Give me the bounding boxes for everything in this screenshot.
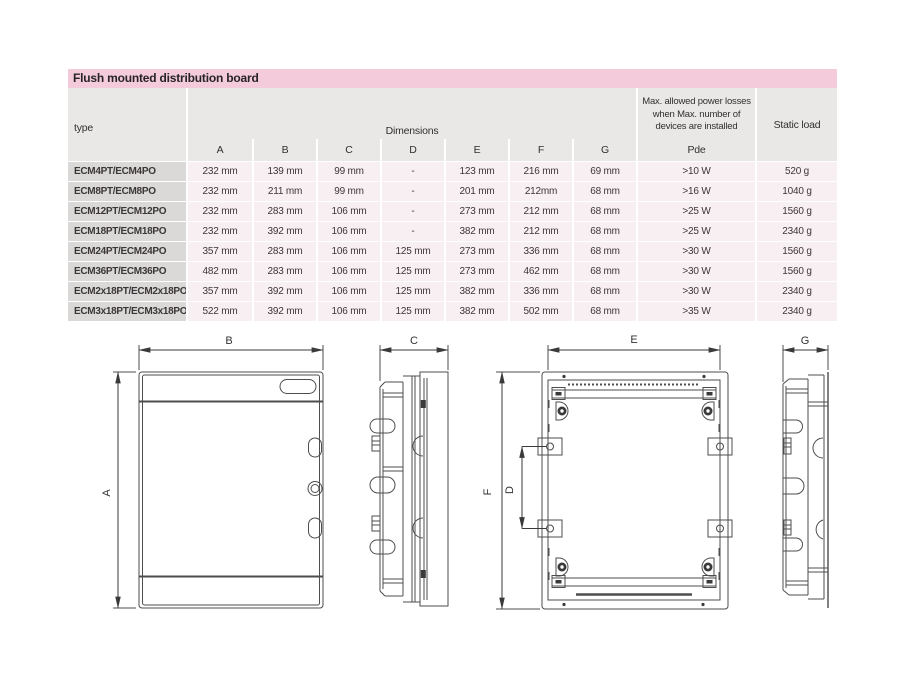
datasheet-page: Flush mounted distribution board type Di… (0, 0, 900, 675)
value-cell: 99 mm (316, 182, 380, 201)
dim-col-header: F (508, 139, 572, 161)
value-cell: 382 mm (444, 302, 508, 321)
dim-col-header: G (572, 139, 636, 161)
value-cell: 382 mm (444, 222, 508, 241)
value-cell: >10 W (636, 162, 755, 181)
dimensions-header: Dimensions (188, 88, 636, 139)
value-cell: 211 mm (252, 182, 316, 201)
side-view-c-drawing: C (365, 332, 465, 632)
value-cell: 68 mm (572, 302, 636, 321)
front-view-drawing: B A (100, 332, 340, 632)
side-view-g-drawing: G (755, 332, 900, 632)
value-cell: - (380, 182, 444, 201)
value-cell: 106 mm (316, 282, 380, 301)
value-cell: >30 W (636, 262, 755, 281)
value-cell: 106 mm (316, 242, 380, 261)
dimension-letters-row: ABCDEFG (188, 139, 636, 161)
value-cell: 212 mm (508, 222, 572, 241)
value-cell: 2340 g (755, 282, 837, 301)
value-cell: 283 mm (252, 262, 316, 281)
value-cell: 392 mm (252, 282, 316, 301)
table-row: ECM24PT/ECM24PO357 mm283 mm106 mm125 mm2… (68, 242, 837, 261)
value-cell: - (380, 202, 444, 221)
value-cell: 392 mm (252, 222, 316, 241)
value-cell: 462 mm (508, 262, 572, 281)
value-cell: 357 mm (188, 282, 252, 301)
value-cell: 283 mm (252, 242, 316, 261)
dim-label-e: E (630, 334, 637, 346)
dim-col-header: D (380, 139, 444, 161)
value-cell: >25 W (636, 222, 755, 241)
value-cell: 232 mm (188, 162, 252, 181)
dim-label-g: G (801, 335, 810, 347)
value-cell: - (380, 222, 444, 241)
value-cell: 502 mm (508, 302, 572, 321)
value-cell: 2340 g (755, 222, 837, 241)
section-title-bar: Flush mounted distribution board (68, 69, 837, 88)
value-cell: 68 mm (572, 182, 636, 201)
dimensions-table-body: ECM4PT/ECM4PO232 mm139 mm99 mm-123 mm216… (68, 161, 837, 321)
value-cell: 99 mm (316, 162, 380, 181)
value-cell: >16 W (636, 182, 755, 201)
value-cell: 232 mm (188, 202, 252, 221)
value-cell: 125 mm (380, 302, 444, 321)
value-cell: 336 mm (508, 282, 572, 301)
value-cell: 232 mm (188, 182, 252, 201)
table-row: ECM12PT/ECM12PO232 mm283 mm106 mm-273 mm… (68, 202, 837, 221)
page-title: Flush mounted distribution board (73, 71, 259, 85)
value-cell: 273 mm (444, 242, 508, 261)
value-cell: >35 W (636, 302, 755, 321)
value-cell: 68 mm (572, 242, 636, 261)
value-cell: 357 mm (188, 242, 252, 261)
table-row: ECM18PT/ECM18PO232 mm392 mm106 mm-382 mm… (68, 222, 837, 241)
value-cell: 106 mm (316, 262, 380, 281)
value-cell: 2340 g (755, 302, 837, 321)
value-cell: 216 mm (508, 162, 572, 181)
table-header: type Dimensions ABCDEFG Max. allowed pow… (68, 88, 837, 161)
value-cell: 125 mm (380, 242, 444, 261)
value-cell: 212 mm (508, 202, 572, 221)
value-cell: 68 mm (572, 262, 636, 281)
value-cell: 68 mm (572, 282, 636, 301)
pde-subheader: Pde (636, 139, 755, 161)
type-cell: ECM2x18PT/ECM2x18PO (68, 282, 188, 301)
type-cell: ECM36PT/ECM36PO (68, 262, 188, 281)
value-cell: 106 mm (316, 222, 380, 241)
table-row: ECM2x18PT/ECM2x18PO357 mm392 mm106 mm125… (68, 282, 837, 301)
value-cell: 520 g (755, 162, 837, 181)
value-cell: 106 mm (316, 302, 380, 321)
value-cell: 69 mm (572, 162, 636, 181)
value-cell: 125 mm (380, 282, 444, 301)
table-row: ECM8PT/ECM8PO232 mm211 mm99 mm-201 mm212… (68, 182, 837, 201)
type-cell: ECM3x18PT/ECM3x18PO (68, 302, 188, 321)
value-cell: 1560 g (755, 262, 837, 281)
value-cell: 382 mm (444, 282, 508, 301)
dim-label-b: B (225, 335, 232, 347)
dim-label-c: C (410, 335, 418, 347)
value-cell: 106 mm (316, 202, 380, 221)
value-cell: 212mm (508, 182, 572, 201)
value-cell: 1560 g (755, 242, 837, 261)
power-losses-header: Max. allowed power losses when Max. numb… (636, 88, 755, 139)
type-cell: ECM24PT/ECM24PO (68, 242, 188, 261)
value-cell: 1560 g (755, 202, 837, 221)
value-cell: 68 mm (572, 222, 636, 241)
door-handle-slot (280, 380, 316, 394)
dim-label-a: A (101, 489, 113, 497)
value-cell: 522 mm (188, 302, 252, 321)
rear-view-drawing: E F D (480, 332, 740, 632)
value-cell: 232 mm (188, 222, 252, 241)
value-cell: >25 W (636, 202, 755, 221)
dim-col-header: E (444, 139, 508, 161)
table-row: ECM36PT/ECM36PO482 mm283 mm106 mm125 mm2… (68, 262, 837, 281)
value-cell: 273 mm (444, 262, 508, 281)
type-cell: ECM18PT/ECM18PO (68, 222, 188, 241)
value-cell: >30 W (636, 282, 755, 301)
dim-label-f: F (482, 488, 494, 495)
type-column-header: type (68, 88, 188, 161)
value-cell: 125 mm (380, 262, 444, 281)
type-cell: ECM8PT/ECM8PO (68, 182, 188, 201)
dim-col-header: C (316, 139, 380, 161)
value-cell: 336 mm (508, 242, 572, 261)
value-cell: 123 mm (444, 162, 508, 181)
static-load-header: Static load (755, 88, 837, 161)
value-cell: 201 mm (444, 182, 508, 201)
value-cell: 392 mm (252, 302, 316, 321)
value-cell: - (380, 162, 444, 181)
dim-label-d: D (504, 486, 516, 494)
table-row: ECM3x18PT/ECM3x18PO522 mm392 mm106 mm125… (68, 302, 837, 321)
value-cell: 68 mm (572, 202, 636, 221)
type-cell: ECM12PT/ECM12PO (68, 202, 188, 221)
table-row: ECM4PT/ECM4PO232 mm139 mm99 mm-123 mm216… (68, 162, 837, 181)
value-cell: 283 mm (252, 202, 316, 221)
value-cell: 139 mm (252, 162, 316, 181)
dim-col-header: A (188, 139, 252, 161)
value-cell: >30 W (636, 242, 755, 261)
value-cell: 273 mm (444, 202, 508, 221)
type-cell: ECM4PT/ECM4PO (68, 162, 188, 181)
value-cell: 482 mm (188, 262, 252, 281)
dim-col-header: B (252, 139, 316, 161)
value-cell: 1040 g (755, 182, 837, 201)
